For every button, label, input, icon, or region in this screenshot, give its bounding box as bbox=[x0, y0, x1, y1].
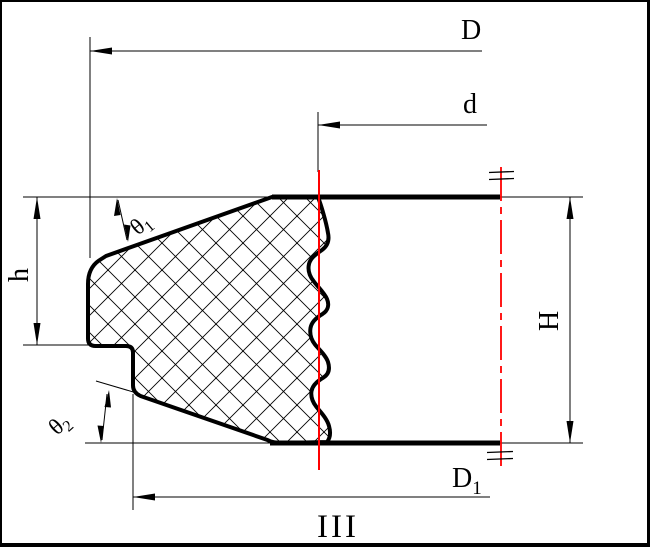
dim-label-d: d bbox=[463, 89, 477, 120]
match-mark-top-1 bbox=[489, 172, 514, 173]
angle-label-theta2: θ2 bbox=[44, 408, 78, 442]
h-arrowhead-up bbox=[34, 197, 41, 219]
reference-lines bbox=[319, 167, 514, 470]
theta2-arrowhead-up bbox=[105, 390, 112, 408]
technical-drawing-canvas: D d D1 h H θ1 θ2 III bbox=[0, 0, 650, 547]
dim-label-D1: D1 bbox=[452, 463, 482, 499]
match-mark-bottom-1 bbox=[487, 452, 513, 453]
h-arrowhead-down bbox=[34, 323, 41, 345]
match-mark-bottom-2 bbox=[487, 459, 513, 460]
match-mark-top-2 bbox=[489, 179, 514, 180]
dim-label-H: H bbox=[534, 311, 565, 331]
dim-label-h: h bbox=[4, 268, 35, 282]
seal-profile-crosshatched bbox=[88, 197, 330, 443]
section-label: III bbox=[317, 509, 359, 545]
drawing-frame: D d D1 h H θ1 θ2 III bbox=[0, 0, 650, 547]
H-arrowhead-up bbox=[567, 197, 574, 219]
D1-arrowhead-left bbox=[133, 494, 155, 501]
dim-label-D: D bbox=[461, 15, 481, 46]
D-arrowhead-left bbox=[90, 48, 112, 55]
H-arrowhead-down bbox=[567, 421, 574, 443]
d-arrowhead-left bbox=[318, 122, 340, 129]
